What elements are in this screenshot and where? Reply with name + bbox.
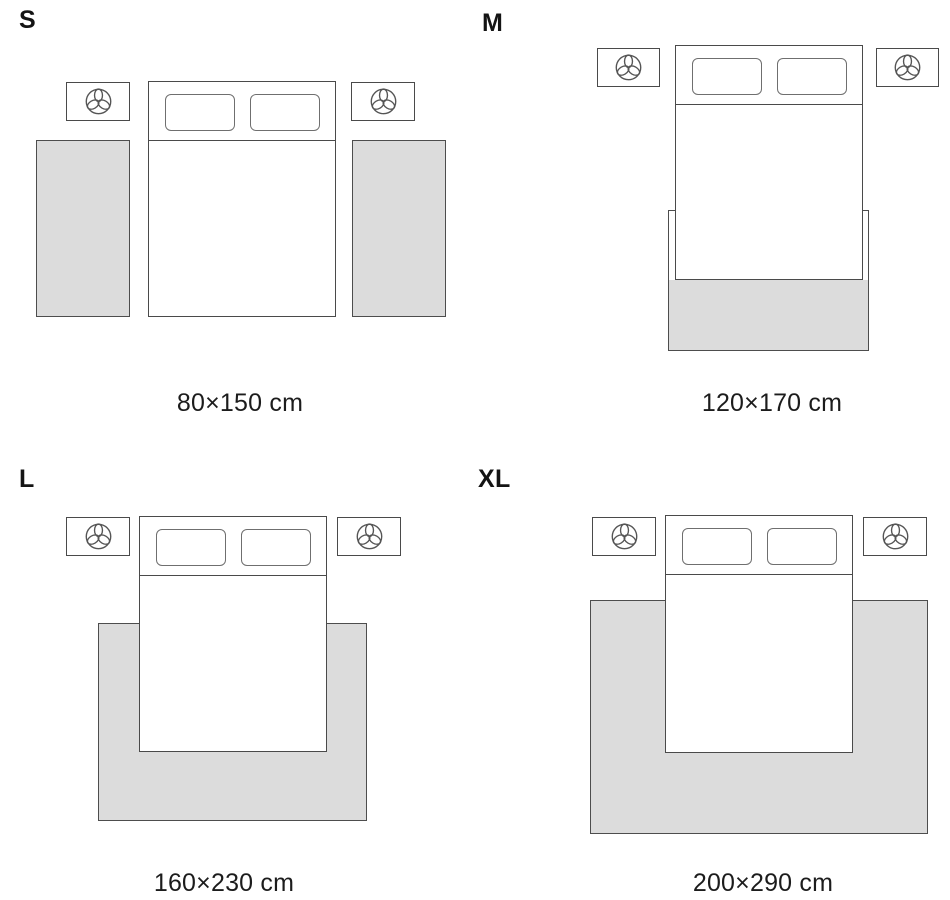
- size-label-m: M: [482, 10, 503, 36]
- bed-headboard: [149, 82, 335, 141]
- nightstand: [337, 517, 401, 556]
- pillow: [692, 58, 762, 95]
- plant-icon: [608, 520, 641, 553]
- plant-icon: [891, 51, 924, 84]
- pillow: [767, 528, 837, 565]
- nightstand: [863, 517, 927, 556]
- pillow: [682, 528, 752, 565]
- nightstand: [597, 48, 660, 87]
- nightstand: [66, 82, 130, 121]
- nightstand: [876, 48, 939, 87]
- size-label-xl: XL: [478, 466, 511, 492]
- nightstand: [66, 517, 130, 556]
- plant-icon: [82, 520, 115, 553]
- bed: [675, 45, 863, 280]
- bed-headboard: [666, 516, 852, 575]
- pillow: [165, 94, 235, 131]
- size-caption-l: 160×230 cm: [154, 869, 294, 898]
- plant-icon: [612, 51, 645, 84]
- size-label-s: S: [19, 7, 36, 33]
- size-label-l: L: [19, 466, 35, 492]
- bed-headboard: [140, 517, 326, 576]
- rug-left: [36, 140, 130, 317]
- size-caption-s: 80×150 cm: [177, 389, 303, 418]
- bed: [139, 516, 327, 752]
- pillow: [156, 529, 226, 566]
- rug-size-guide: S 80×150 cm M: [0, 0, 950, 900]
- size-caption-m: 120×170 cm: [702, 389, 842, 418]
- pillow: [250, 94, 320, 131]
- rug-visible-fill: [669, 280, 868, 350]
- bed-headboard: [676, 46, 862, 105]
- pillow: [777, 58, 847, 95]
- plant-icon: [82, 85, 115, 118]
- nightstand: [351, 82, 415, 121]
- pillow: [241, 529, 311, 566]
- bed: [665, 515, 853, 753]
- plant-icon: [353, 520, 386, 553]
- nightstand: [592, 517, 656, 556]
- rug-right: [352, 140, 446, 317]
- plant-icon: [367, 85, 400, 118]
- bed: [148, 81, 336, 317]
- plant-icon: [879, 520, 912, 553]
- size-caption-xl: 200×290 cm: [693, 869, 833, 898]
